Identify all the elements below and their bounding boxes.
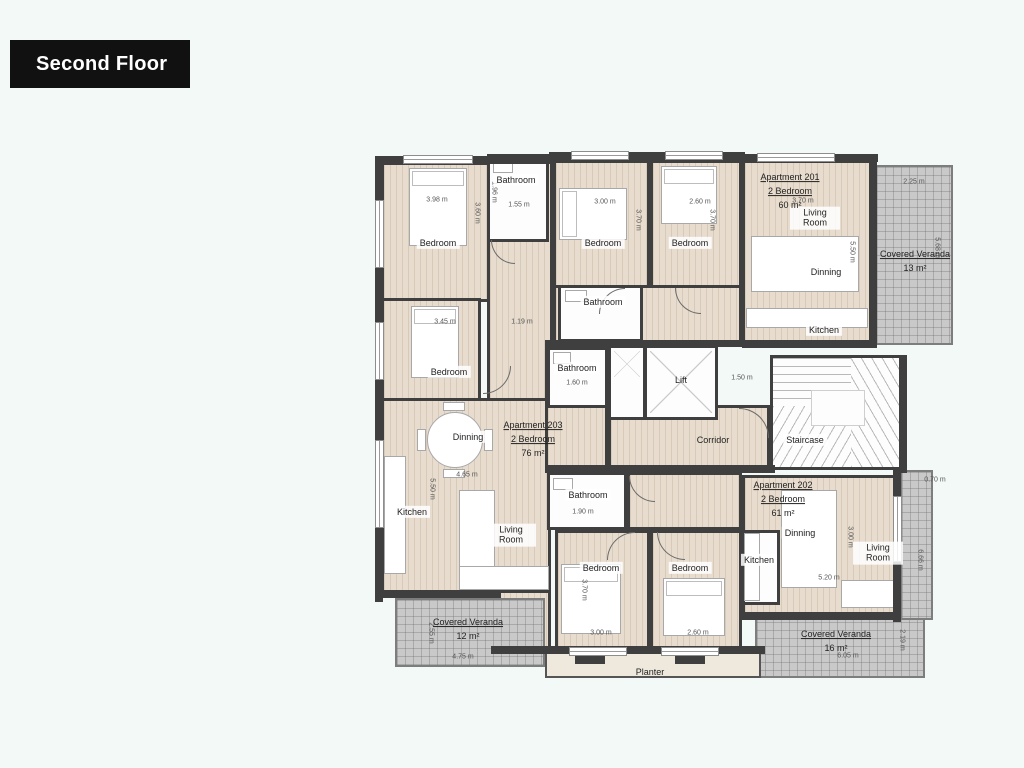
dim-label: 3.70 m xyxy=(635,209,642,230)
wall xyxy=(899,355,907,473)
dim-label: 5.20 m xyxy=(818,575,839,582)
apartment-area: 60 m² xyxy=(778,199,801,213)
wall xyxy=(742,612,901,620)
veranda-13-label: Covered Veranda 13 m² xyxy=(880,248,950,276)
bed xyxy=(559,188,627,240)
dim-label: 2.60 m xyxy=(687,630,708,637)
kitchen-counter xyxy=(744,533,760,601)
floor-label-badge: Second Floor xyxy=(10,40,190,88)
room-label-staircase: Staircase xyxy=(783,434,827,446)
stair-landing xyxy=(811,390,865,426)
veranda-title: Covered Veranda xyxy=(801,628,871,642)
floor-plan: Bedroom Bathroom Bedroom Bathroom Dinnin… xyxy=(375,140,960,685)
dim-label: 4.75 m xyxy=(452,654,473,661)
room-label-kitchen: Kitchen xyxy=(806,324,842,336)
dim-label: 6.66 m xyxy=(917,549,924,570)
wall xyxy=(869,160,877,348)
wall xyxy=(545,465,775,473)
bed xyxy=(663,578,725,636)
dim-label: 3.70 m xyxy=(709,209,716,230)
dim-label: 1.60 m xyxy=(566,380,587,387)
veranda-area: 16 m² xyxy=(824,642,847,656)
room-label-dining: Dinning xyxy=(782,527,819,539)
window xyxy=(665,151,723,160)
bed xyxy=(409,168,467,246)
room-label-bedroom: Bedroom xyxy=(428,366,471,378)
sofa xyxy=(751,236,859,292)
room-label-dining: Dinning xyxy=(450,431,487,443)
chair xyxy=(443,402,465,411)
chair xyxy=(417,429,426,451)
shaft-x-icon xyxy=(614,351,640,377)
dim-label: 3.45 m xyxy=(434,319,455,326)
apartment-203-label: Apartment 203 2 Bedroom 76 m² xyxy=(503,419,562,461)
wall xyxy=(381,590,501,598)
room-label-kitchen: Kitchen xyxy=(741,554,777,566)
dim-label: 3.00 m xyxy=(590,630,611,637)
room-staircase xyxy=(770,355,905,470)
apartment-area: 61 m² xyxy=(771,507,794,521)
dim-label: 3.70 m xyxy=(581,579,588,600)
dim-label: 2.25 m xyxy=(903,179,924,186)
room-label-planter: Planter xyxy=(633,666,668,678)
floor-label: Second Floor xyxy=(36,53,167,76)
veranda-area: 13 m² xyxy=(903,262,926,276)
window xyxy=(375,200,384,268)
dim-label: 5.50 m xyxy=(429,478,436,499)
room-label-living: Living Room xyxy=(486,524,536,547)
apartment-type: 2 Bedroom xyxy=(768,185,812,199)
veranda-16-label: Covered Veranda 16 m² xyxy=(801,628,871,656)
room-label-bathroom: Bathroom xyxy=(580,296,625,308)
room-label-corridor: Corridor xyxy=(694,434,733,446)
dim-label: 1.19 m xyxy=(511,319,532,326)
window xyxy=(375,322,384,380)
room-label-bathroom: Bathroom xyxy=(493,174,538,186)
room-label-bedroom: Bedroom xyxy=(669,562,712,574)
sofa xyxy=(459,566,549,590)
dim-label: 1.55 m xyxy=(508,202,529,209)
dim-label: 2.60 m xyxy=(689,199,710,206)
shaft xyxy=(608,345,646,420)
room-label-bedroom: Bedroom xyxy=(582,237,625,249)
room-label-bedroom: Bedroom xyxy=(417,237,460,249)
window xyxy=(403,155,473,164)
room-label-bedroom: Bedroom xyxy=(669,237,712,249)
dim-label: 1.90 m xyxy=(572,509,593,516)
dim-label: 2.19 m xyxy=(899,629,906,650)
dim-label: 1.50 m xyxy=(731,375,752,382)
dim-label: 4.65 m xyxy=(456,472,477,479)
dim-label: 3.00 m xyxy=(594,199,615,206)
room-label-lift: Lift xyxy=(672,374,690,386)
dim-label: 3.60 m xyxy=(474,202,481,223)
apartment-name: Apartment 201 xyxy=(760,171,819,185)
room-label-bathroom: Bathroom xyxy=(554,362,599,374)
room-label-kitchen: Kitchen xyxy=(394,506,430,518)
apartment-202-label: Apartment 202 2 Bedroom 61 m² xyxy=(753,479,812,521)
dim-label: 3.98 m xyxy=(426,197,447,204)
window xyxy=(661,647,719,656)
window xyxy=(569,647,627,656)
wall xyxy=(742,340,877,348)
window xyxy=(571,151,629,160)
sofa xyxy=(841,580,895,608)
room-label-bathroom: Bathroom xyxy=(565,489,610,501)
dim-label: 5.50 m xyxy=(849,241,856,262)
room-label-bedroom: Bedroom xyxy=(580,562,623,574)
veranda-title: Covered Veranda xyxy=(880,248,950,262)
apartment-name: Apartment 202 xyxy=(753,479,812,493)
window xyxy=(757,153,835,162)
apartment-name: Apartment 203 xyxy=(503,419,562,433)
apartment-201-label: Apartment 201 2 Bedroom 60 m² xyxy=(760,171,819,213)
wall xyxy=(545,340,745,347)
veranda-title: Covered Veranda xyxy=(433,616,503,630)
bed xyxy=(561,564,621,634)
veranda-area: 12 m² xyxy=(456,630,479,644)
veranda-12-label: Covered Veranda 12 m² xyxy=(433,616,503,644)
dim-label: 0.70 m xyxy=(924,477,945,484)
apartment-area: 76 m² xyxy=(521,447,544,461)
room-label-living: Living Room xyxy=(853,542,903,565)
window xyxy=(375,440,384,528)
apartment-type: 2 Bedroom xyxy=(511,433,555,447)
room-label-dining: Dinning xyxy=(808,266,845,278)
veranda-strip-right xyxy=(900,470,933,620)
apartment-type: 2 Bedroom xyxy=(761,493,805,507)
